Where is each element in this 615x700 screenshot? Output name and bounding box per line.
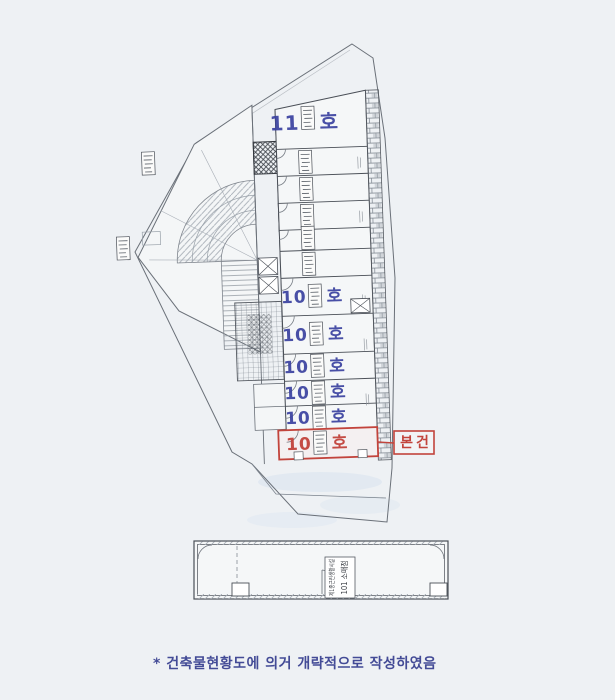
subject-unit: 10 호 [278,427,378,460]
bottom-plan: 101 소매점 제1종근린생활시설 [194,541,448,599]
unit-label-suffix: 호 [330,407,347,428]
illegible-note-box [141,152,155,175]
bottom-plan-label-box: 101 소매점 제1종근린생활시설 [325,557,355,598]
column [232,583,249,596]
unit-label-suffix: 호 [329,356,346,377]
small-elevator-room [351,298,370,313]
floorplan-svg: 11 호 10 호 10 호 10 호 10 호 [0,0,615,700]
bottom-plan-unit-use-label: 101 소매점 [339,561,349,595]
unit-label-prefix: 10 [284,383,310,404]
unit-label-suffix: 호 [319,109,339,134]
subject-callout-label: 본건 [400,434,432,451]
scanned-floorplan-page: 11 호 10 호 10 호 10 호 10 호 [0,0,615,700]
unit-label-suffix: 호 [328,324,345,345]
subject-unit-label-suffix: 호 [331,433,348,454]
main-building: 11 호 10 호 10 호 10 호 10 호 [112,90,392,469]
caption: * 건축물현황도에 의거 개략적으로 작성하였음 [153,653,513,673]
unit-label-prefix: 11 [269,111,300,136]
unit-label-suffix: 호 [330,382,347,403]
unit-stack: 11 호 10 호 10 호 10 호 10 호 [266,90,391,464]
subject-unit-label-prefix: 10 [286,434,312,455]
unit-label-prefix: 10 [281,287,307,308]
elevator [258,257,278,294]
column [430,583,447,596]
subject-connector-line [378,442,394,443]
illegible-note-box [116,237,130,260]
unit-label-prefix: 10 [282,325,308,346]
unit-label-suffix: 호 [326,286,343,307]
unit-label-prefix: 10 [283,357,309,378]
unit-label-10x: 10 호 [284,380,347,405]
unit-label-prefix: 10 [285,408,311,429]
unit-label-10x: 10 호 [285,405,348,430]
stair-shaft [253,141,277,174]
top-wall [197,542,445,546]
bottom-plan-facility-type-label: 제1종근린생활시설 [328,559,336,596]
scan-smudges [247,472,400,528]
